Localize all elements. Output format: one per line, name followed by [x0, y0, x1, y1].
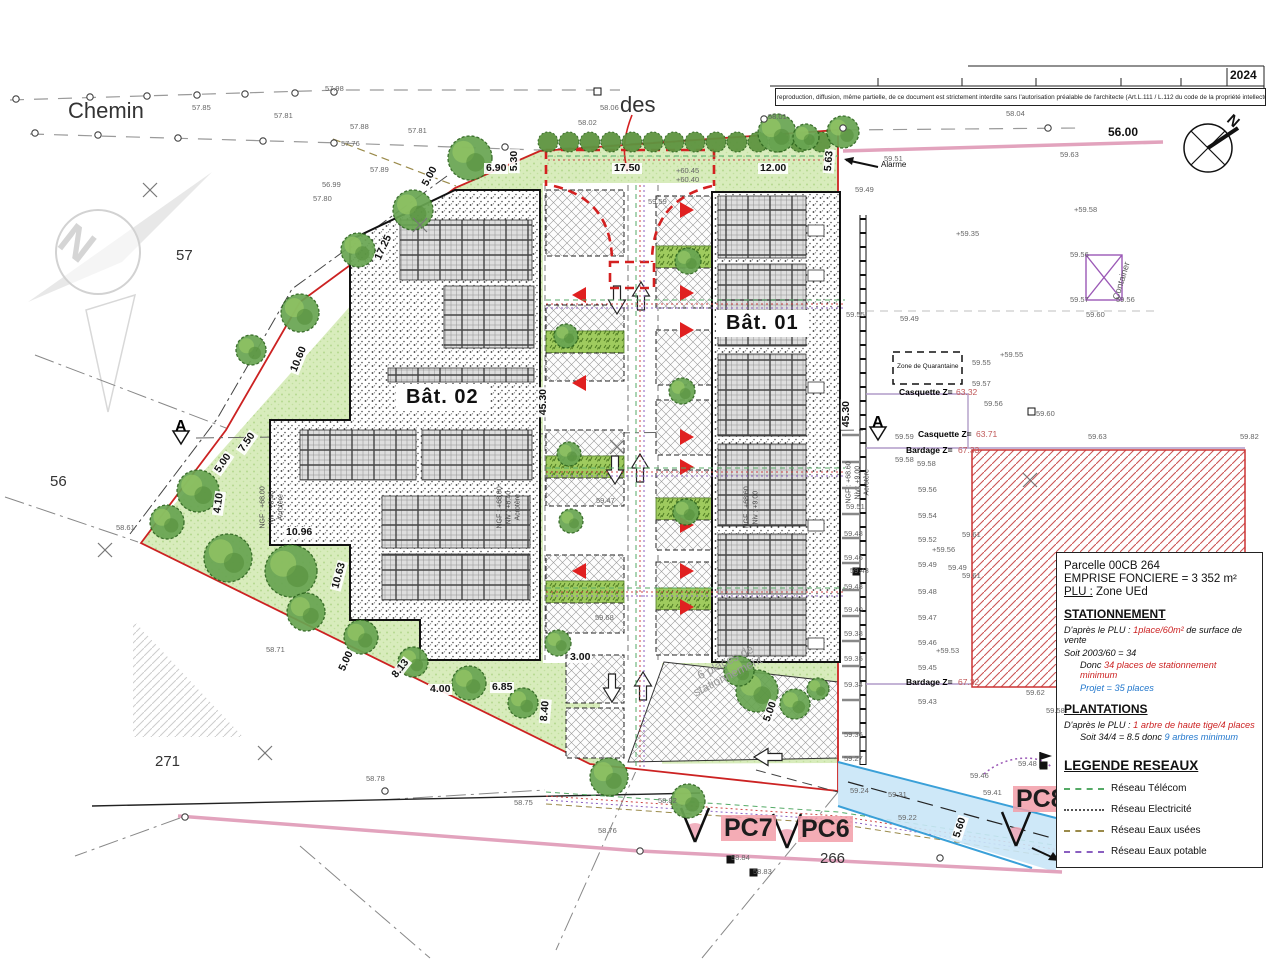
survey-point-icon — [182, 814, 188, 820]
hedge-tree-icon — [580, 132, 600, 152]
survey-point-icon — [382, 788, 388, 794]
tree-icon — [545, 630, 571, 656]
parking-bay — [566, 708, 624, 758]
marker-square-icon — [594, 88, 601, 95]
marker-square-icon — [727, 856, 734, 863]
survey-point-icon — [95, 132, 101, 138]
hedge-tree-icon — [643, 132, 663, 152]
tree-icon — [204, 534, 252, 582]
hedge-tree-icon — [685, 132, 705, 152]
parking-bay — [546, 478, 624, 506]
hedge-tree-icon — [664, 132, 684, 152]
hedge-tree-icon — [559, 132, 579, 152]
survey-point-icon — [331, 89, 337, 95]
parking-bay — [656, 196, 712, 246]
survey-point-icon — [13, 96, 19, 102]
tree-icon — [675, 248, 701, 274]
survey-point-icon — [292, 90, 298, 96]
tree-icon — [793, 124, 819, 150]
tree-icon — [554, 324, 578, 348]
marker-square-icon — [853, 568, 860, 575]
quarantine-zone-box — [893, 352, 962, 384]
parking-bay — [546, 603, 624, 633]
right-side-annotations — [842, 142, 1245, 765]
x-mark-icon — [143, 183, 157, 197]
parking-bay — [656, 470, 712, 498]
hedge-tree-icon — [706, 132, 726, 152]
survey-point-icon — [1045, 125, 1051, 131]
survey-point-icon — [331, 140, 337, 146]
survey-point-icon — [937, 855, 943, 861]
tree-icon — [281, 294, 319, 332]
x-mark-icon — [98, 543, 112, 557]
survey-point-icon — [637, 848, 643, 854]
marker-square-icon — [1028, 408, 1035, 415]
tree-icon — [236, 335, 266, 365]
existing-building-hatched — [972, 450, 1245, 687]
survey-point-icon — [144, 93, 150, 99]
tree-icon — [673, 499, 699, 525]
tree-icon — [448, 136, 492, 180]
tree-icon — [341, 233, 375, 267]
tree-icon — [559, 509, 583, 533]
tree-icon — [590, 758, 628, 796]
north-compass-icon — [1184, 124, 1238, 172]
x-mark-icon — [258, 746, 272, 760]
tree-icon — [724, 656, 754, 686]
tree-icon — [827, 116, 859, 148]
survey-point-icon — [761, 116, 767, 122]
container-box — [1086, 255, 1122, 300]
hedge-tree-icon — [622, 132, 642, 152]
tree-icon — [671, 784, 705, 818]
tree-icon — [287, 593, 325, 631]
tree-icon — [398, 647, 428, 677]
parking-bay — [656, 400, 712, 455]
tree-icon — [780, 689, 810, 719]
tree-icon — [265, 545, 317, 597]
tree-icon — [177, 470, 219, 512]
tree-icon — [150, 505, 184, 539]
tree-icon — [557, 442, 581, 466]
site-plan-page: Toute reproduction, diffusion, même part… — [0, 0, 1280, 960]
tree-icon — [669, 378, 695, 404]
survey-point-icon — [175, 135, 181, 141]
marker-square-icon — [750, 869, 757, 876]
tree-icon — [807, 678, 829, 700]
survey-point-icon — [260, 138, 266, 144]
parking-bay — [656, 330, 712, 385]
parking-bay — [656, 610, 712, 655]
survey-point-icon — [502, 144, 508, 150]
tree-icon — [508, 688, 538, 718]
site-plan-drawing — [0, 0, 1280, 960]
survey-point-icon — [87, 94, 93, 100]
tree-icon — [452, 666, 486, 700]
survey-point-icon — [194, 92, 200, 98]
tree-icon — [393, 190, 433, 230]
tree-icon — [344, 620, 378, 654]
hedge-tree-icon — [601, 132, 621, 152]
survey-point-icon — [242, 91, 248, 97]
survey-point-icon — [840, 125, 846, 131]
hedge-tree-icon — [538, 132, 558, 152]
hedge-tree-icon — [727, 132, 747, 152]
marker-square-icon — [1040, 762, 1047, 769]
survey-point-icon — [32, 130, 38, 136]
